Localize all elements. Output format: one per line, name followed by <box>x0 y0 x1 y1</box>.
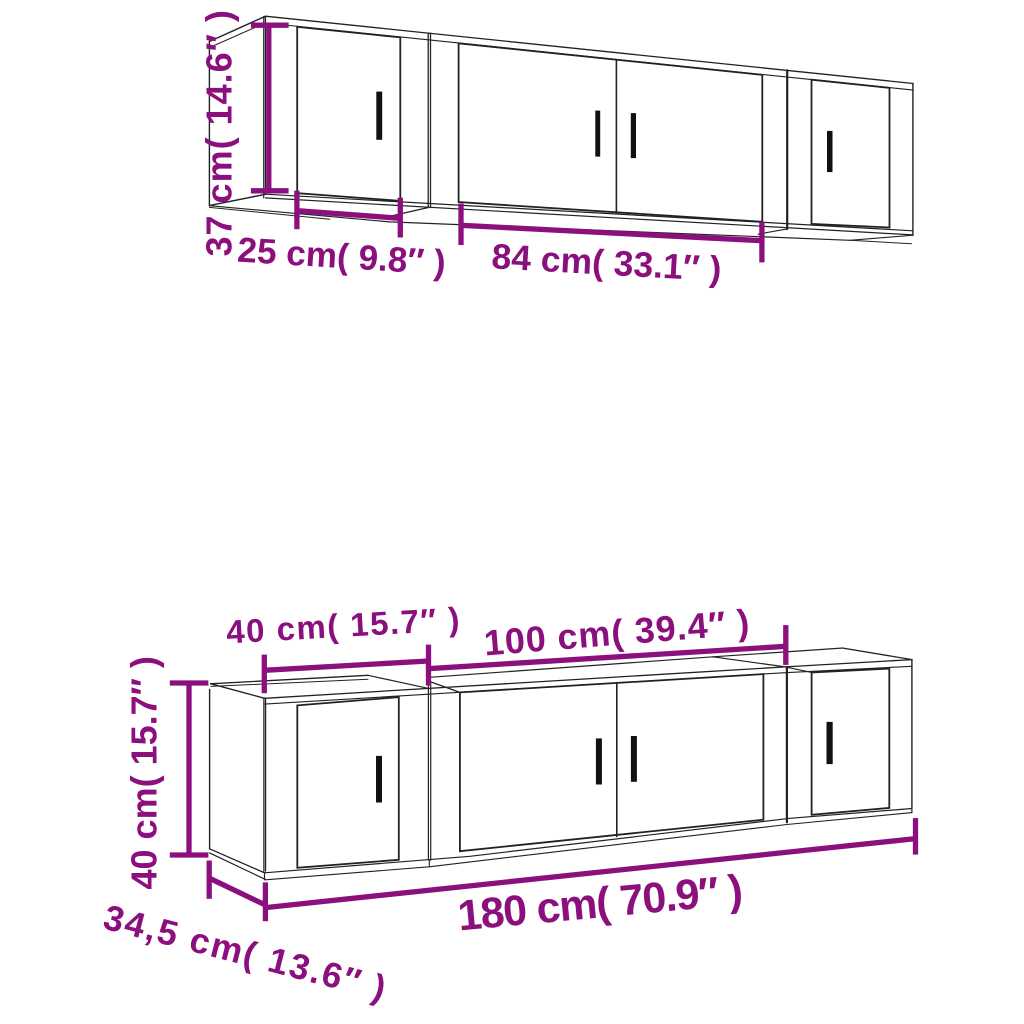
svg-text:37 cm( 14.6″ ): 37 cm( 14.6″ ) <box>198 9 239 256</box>
svg-text:40 cm( 15.7″ ): 40 cm( 15.7″ ) <box>124 656 165 889</box>
